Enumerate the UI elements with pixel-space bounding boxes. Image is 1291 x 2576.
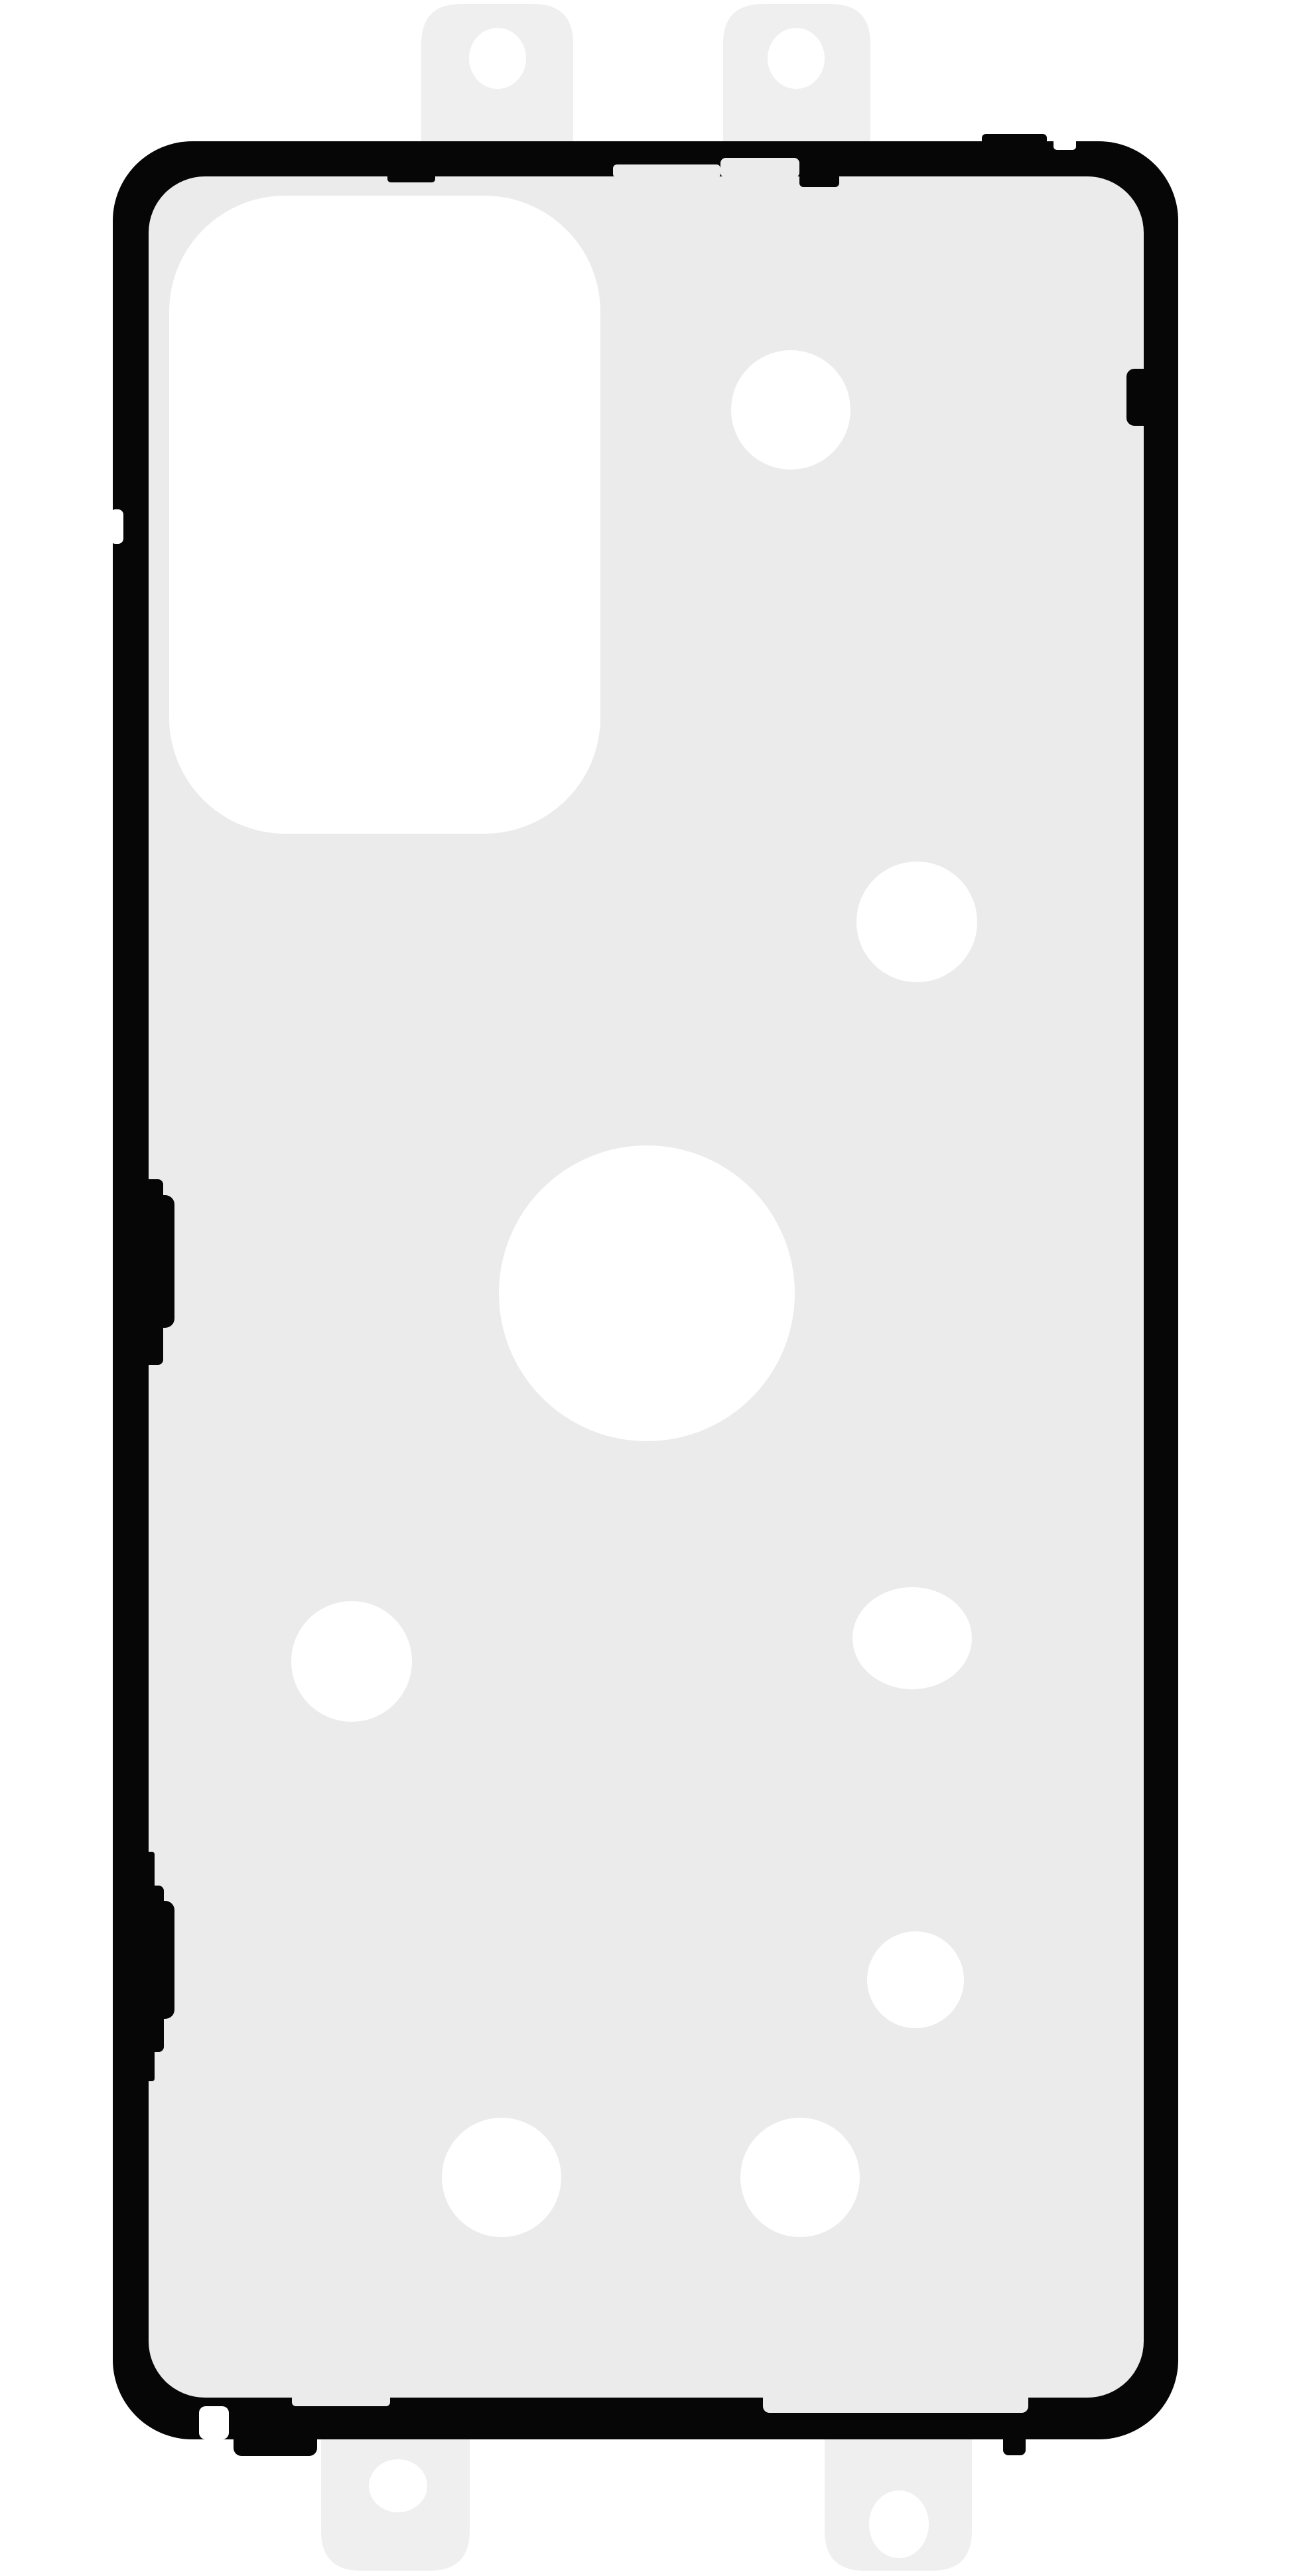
pull-tab-top-right-hole <box>768 28 825 89</box>
product-image-canvas <box>0 0 1291 2576</box>
hole-lower-left <box>291 1601 412 1722</box>
bottom-outer-tooth-right <box>1003 2427 1026 2455</box>
top-band-tooth-left <box>387 166 435 182</box>
bottom-band-tongue <box>292 2388 390 2406</box>
hole-bottom-left <box>442 2118 561 2237</box>
pull-tab-bottom-left-hole <box>369 2459 427 2512</box>
hole-lower-right-oval <box>852 1587 972 1689</box>
pull-tab-top-left-hole <box>469 28 526 89</box>
left-edge-notch <box>110 509 123 544</box>
top-outer-bump <box>982 134 1047 147</box>
left-protrusion-2-shoulder-bottom <box>133 2014 164 2052</box>
left-protrusion-2-step-top <box>133 1852 155 1890</box>
left-protrusion-2-step-bottom <box>133 2047 155 2081</box>
hole-mid-right <box>856 862 977 982</box>
left-protrusion-2-main <box>133 1901 174 2019</box>
bottom-left-outer-notch <box>199 2406 229 2439</box>
top-band-tooth-right <box>799 166 839 187</box>
top-band-notch-b <box>720 158 799 178</box>
hole-upper-right <box>731 350 850 470</box>
bottom-outer-bump <box>234 2427 317 2456</box>
left-protrusion-1-main <box>133 1195 174 1328</box>
camera-module-cutout <box>169 196 600 834</box>
left-protrusion-1-shoulder-bottom <box>133 1324 163 1365</box>
top-band-notch-a <box>613 164 720 178</box>
hole-bottom-right <box>740 2118 860 2237</box>
hole-center-large <box>499 1145 795 1441</box>
top-edge-notch <box>1053 138 1076 150</box>
right-band-inner-bump <box>1126 369 1153 426</box>
hole-small-right <box>867 1931 964 2028</box>
adhesive-sticker-graphic <box>0 0 1291 2576</box>
bottom-band-deep-tongue <box>763 2388 1028 2413</box>
pull-tab-bottom-right-hole <box>869 2490 929 2558</box>
